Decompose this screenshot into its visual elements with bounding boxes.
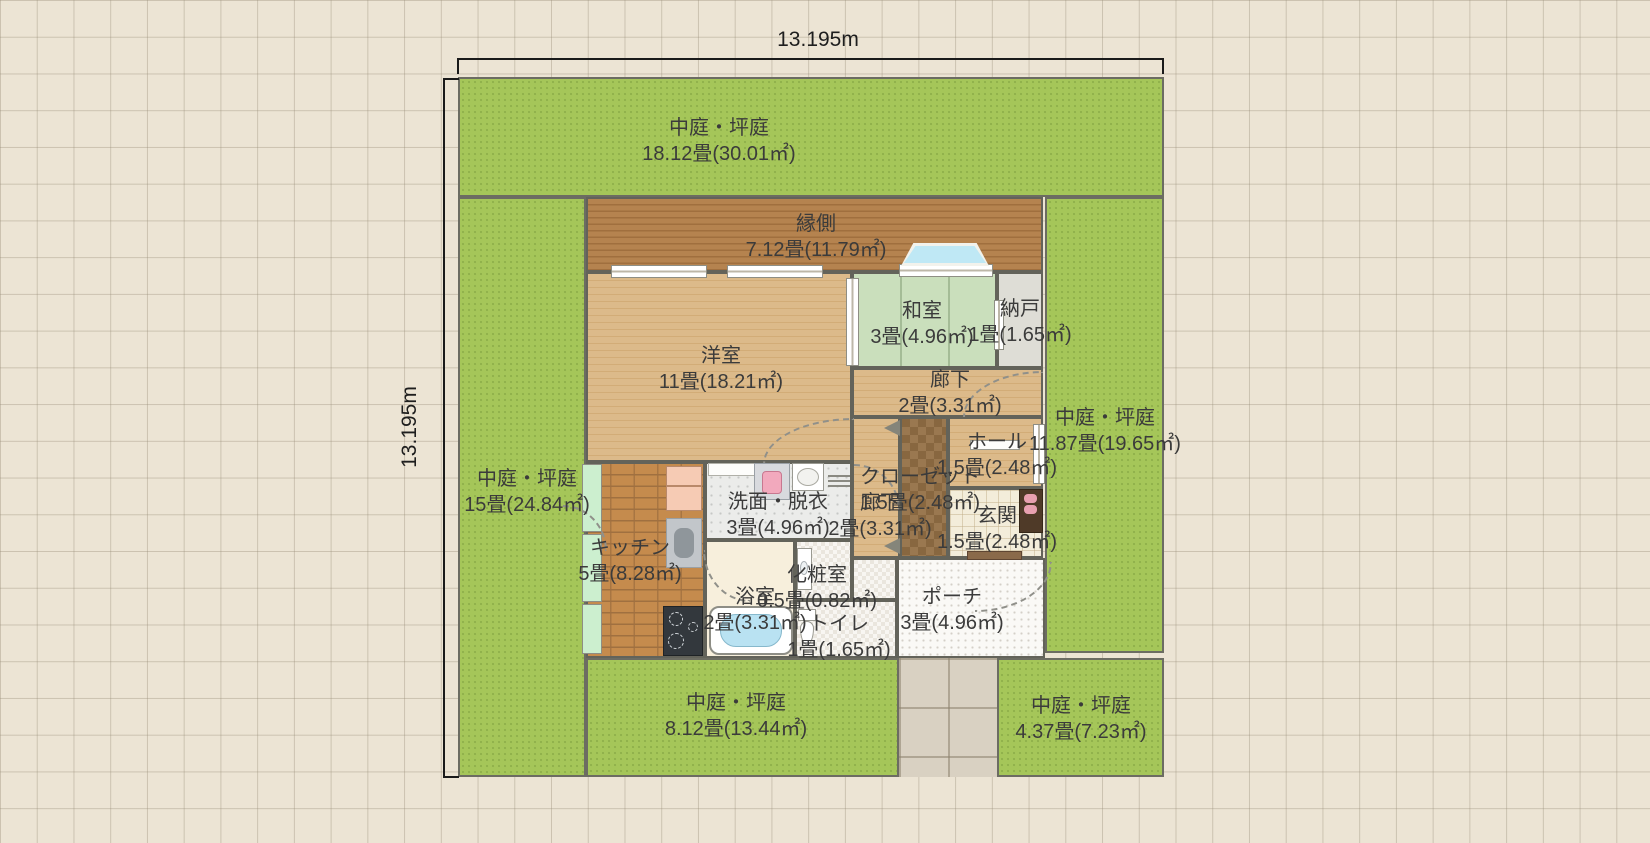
garden-left-label: 中庭・坪庭15畳(24.84㎡): [464, 466, 590, 518]
dimension-line-left: [443, 78, 445, 778]
bathroom-sink-icon[interactable]: [792, 463, 824, 491]
washitsu-label: 和室3畳(4.96㎡): [870, 298, 973, 350]
plan-canvas[interactable]: 13.195m 13.195m: [0, 0, 1650, 843]
yoshitsu-label: 洋室11畳(18.21㎡): [659, 343, 783, 395]
garden-bottom-label: 中庭・坪庭8.12畳(13.44㎡): [665, 690, 807, 742]
dimension-width-label: 13.195m: [777, 28, 859, 52]
roka-upper-label: 廊下2畳(3.31㎡): [898, 367, 1001, 419]
dimension-line-top: [457, 58, 1164, 60]
sliding-door[interactable]: [611, 265, 707, 278]
garden-top[interactable]: [458, 77, 1164, 197]
nando-label: 納戸1畳(1.65㎡): [968, 296, 1071, 348]
washitsu-divider-door[interactable]: [846, 278, 859, 366]
clothes-hanger-icon: [884, 420, 900, 436]
dimension-tick-left-bottom: [443, 776, 459, 778]
approach-path[interactable]: [899, 658, 997, 777]
basin: [797, 468, 819, 486]
dimension-tick-top-left: [457, 58, 459, 74]
closet-label: クローゼット1.5畳(2.48㎡): [860, 464, 980, 516]
counter[interactable]: [708, 463, 756, 476]
garden-top-label: 中庭・坪庭18.12畳(30.01㎡): [642, 115, 795, 167]
burner-icon: [669, 612, 683, 626]
sliding-door[interactable]: [727, 265, 823, 278]
engawa-label: 縁側7.12畳(11.79㎡): [746, 211, 887, 263]
stove-icon[interactable]: [663, 606, 703, 656]
dimension-tick-left-top: [443, 78, 459, 80]
burner-icon: [668, 633, 684, 649]
dimension-tick-top-right: [1162, 58, 1164, 74]
slippers-icon: [1024, 494, 1037, 503]
burner-icon: [688, 622, 698, 632]
porch-label: ポーチ3畳(4.96㎡): [900, 584, 1003, 636]
towel-rack-icon[interactable]: [828, 475, 850, 488]
bay-window[interactable]: [901, 243, 989, 266]
garden-bottom-right-label: 中庭・坪庭4.37畳(7.23㎡): [1015, 693, 1146, 745]
toilet-label: トイレ1畳(1.65㎡): [787, 611, 890, 663]
bay-window-glass: [904, 246, 986, 263]
kitchen-window[interactable]: [582, 604, 602, 654]
senmen-label: 洗面・脱衣3畳(4.96㎡): [726, 489, 829, 541]
dimension-height-label: 13.195m: [398, 386, 422, 468]
refrigerator-icon[interactable]: [666, 466, 702, 511]
kitchen-label: キッチン5畳(8.28㎡): [578, 535, 681, 587]
